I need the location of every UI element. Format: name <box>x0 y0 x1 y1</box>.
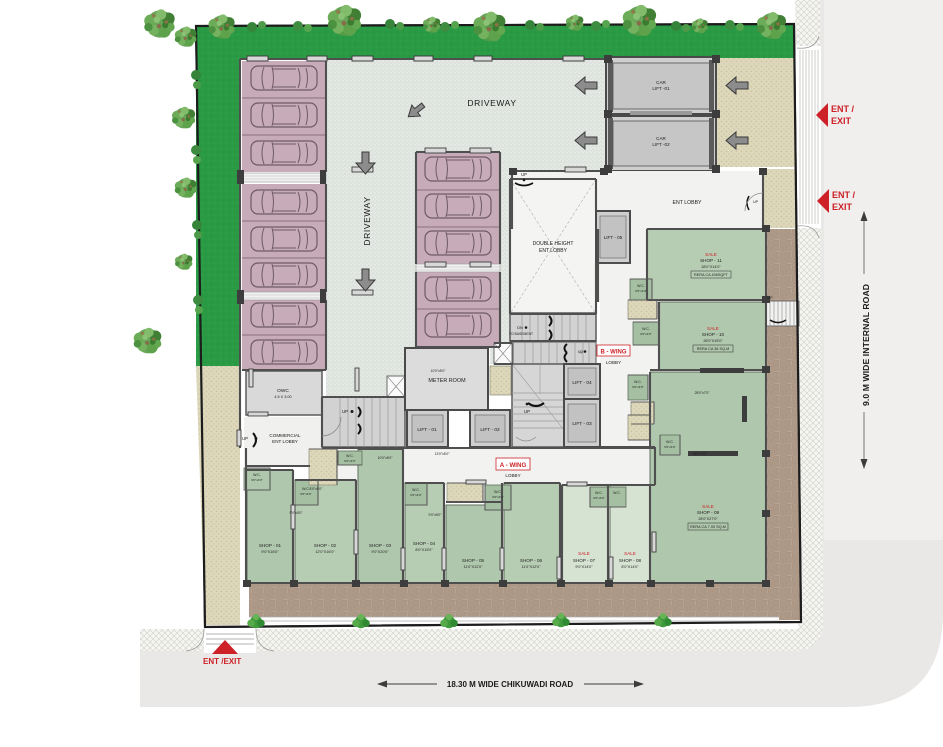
svg-text:9.0 M WIDE INTERNAL ROAD: 9.0 M WIDE INTERNAL ROAD <box>861 284 871 406</box>
svg-text:W.C.: W.C. <box>642 327 650 331</box>
svg-text:12'0"X16'0": 12'0"X16'0" <box>315 550 335 554</box>
svg-text:11'0"X12'0": 11'0"X12'0" <box>521 565 541 569</box>
svg-text:W.C.: W.C. <box>613 491 621 495</box>
svg-text:W.C.: W.C. <box>253 473 261 477</box>
svg-text:UP: UP <box>242 436 248 441</box>
svg-text:28'0"x5'0": 28'0"x5'0" <box>693 452 709 456</box>
svg-text:LOBBY: LOBBY <box>505 473 520 478</box>
svg-text:LIFT - 04: LIFT - 04 <box>572 380 592 386</box>
svg-text:SHOP - 10: SHOP - 10 <box>702 332 725 337</box>
svg-text:up: up <box>578 349 583 354</box>
svg-text:SHOP - 02: SHOP - 02 <box>314 543 337 548</box>
svg-text:6'0"x4'0": 6'0"x4'0" <box>632 385 643 389</box>
svg-text:6'0"x4'0": 6'0"x4'0" <box>251 478 262 482</box>
svg-text:6'0"x4'0": 6'0"x4'0" <box>640 332 651 336</box>
svg-text:SHOP - 06: SHOP - 06 <box>520 558 543 563</box>
svg-text:9'0"x5'0": 9'0"x5'0" <box>429 513 443 517</box>
svg-text:LIFT -01: LIFT -01 <box>652 86 670 91</box>
svg-text:UP: UP <box>767 296 773 300</box>
svg-text:28'0"x7'0": 28'0"x7'0" <box>695 391 711 395</box>
svg-text:UP: UP <box>521 172 527 177</box>
svg-text:11'0"X12'0": 11'0"X12'0" <box>463 565 483 569</box>
svg-text:28'0"X27'0": 28'0"X27'0" <box>698 517 718 521</box>
svg-text:10'0"x5'0": 10'0"x5'0" <box>431 369 447 373</box>
svg-text:LIFT - 05: LIFT - 05 <box>604 235 623 240</box>
svg-text:RERA CA 406SQFT: RERA CA 406SQFT <box>694 273 729 277</box>
svg-text:28'0"X14'0": 28'0"X14'0" <box>701 265 721 269</box>
svg-text:DRIVEWAY: DRIVEWAY <box>362 196 372 245</box>
svg-text:13'0"x5'0": 13'0"x5'0" <box>435 452 451 456</box>
svg-text:SALE: SALE <box>702 504 714 509</box>
svg-text:CAR: CAR <box>656 136 666 141</box>
svg-text:6'0"x4'0": 6'0"x4'0" <box>300 492 311 496</box>
svg-text:A - WING: A - WING <box>500 462 527 469</box>
svg-text:4.5 X 3.00: 4.5 X 3.00 <box>274 395 291 399</box>
svg-text:ENT /: ENT / <box>832 190 856 200</box>
svg-text:DRIVEWAY: DRIVEWAY <box>467 98 516 108</box>
svg-text:6'0"x4'0": 6'0"x4'0" <box>344 459 355 463</box>
svg-text:RERA CA 7.00 SQ.M: RERA CA 7.00 SQ.M <box>690 525 726 529</box>
svg-text:LIFT - 02: LIFT - 02 <box>480 427 500 433</box>
svg-text:9'0"X14'0": 9'0"X14'0" <box>575 565 593 569</box>
svg-text:SHOP - 05: SHOP - 05 <box>462 558 485 563</box>
svg-text:LIFT - 01: LIFT - 01 <box>417 427 437 433</box>
svg-text:8'0"X14'0": 8'0"X14'0" <box>621 565 639 569</box>
svg-text:8'0"X15'0": 8'0"X15'0" <box>415 548 433 552</box>
svg-text:W.C.: W.C. <box>494 490 502 494</box>
svg-text:RERA CA 36 SQ.M: RERA CA 36 SQ.M <box>697 347 730 351</box>
svg-text:METER ROOM: METER ROOM <box>428 378 466 384</box>
svg-text:6'0"x4'0": 6'0"x4'0" <box>593 496 604 500</box>
svg-text:OWC: OWC <box>277 388 289 394</box>
svg-text:COMMERCIAL: COMMERCIAL <box>269 433 301 438</box>
svg-text:ENT /: ENT / <box>831 104 855 114</box>
svg-text:8'0"x5'0": 8'0"x5'0" <box>310 487 324 491</box>
svg-text:6'0"x4'0": 6'0"x4'0" <box>664 445 675 449</box>
svg-text:18.30 M WIDE CHIKUWADI ROAD: 18.30 M WIDE CHIKUWADI ROAD <box>447 680 573 689</box>
svg-text:UP: UP <box>524 409 530 414</box>
svg-text:UP: UP <box>753 200 759 204</box>
svg-text:9'0"x5'0": 9'0"x5'0" <box>290 511 304 515</box>
svg-text:LIFT - 03: LIFT - 03 <box>572 421 592 427</box>
svg-text:EXIT: EXIT <box>831 116 852 126</box>
svg-text:SHOP - 01: SHOP - 01 <box>259 543 282 548</box>
svg-text:6'0"x4'0": 6'0"x4'0" <box>410 493 421 497</box>
svg-text:SALE: SALE <box>705 252 717 257</box>
svg-text:6'0"x4'0": 6'0"x4'0" <box>635 289 646 293</box>
svg-text:9'0"X20'0": 9'0"X20'0" <box>371 550 389 554</box>
svg-text:W.C.: W.C. <box>412 488 420 492</box>
svg-text:CAR: CAR <box>656 80 666 85</box>
svg-text:SHOP - 08: SHOP - 08 <box>619 558 642 563</box>
svg-text:SHOP - 04: SHOP - 04 <box>413 541 436 546</box>
svg-text:9'0"X16'0": 9'0"X16'0" <box>261 550 279 554</box>
svg-text:EXIT: EXIT <box>832 202 853 212</box>
svg-text:SALE: SALE <box>624 551 636 556</box>
svg-text:W.C.: W.C. <box>346 454 354 458</box>
svg-text:W.C.: W.C. <box>595 491 603 495</box>
svg-text:6'0"x4'0": 6'0"x4'0" <box>492 495 503 499</box>
svg-text:ENT LOBBY: ENT LOBBY <box>272 439 298 444</box>
svg-text:ENT LOBBY: ENT LOBBY <box>539 248 568 254</box>
svg-text:SALE: SALE <box>707 326 719 331</box>
svg-text:SHOP - 11: SHOP - 11 <box>700 258 722 263</box>
svg-text:ENT LOBBY: ENT LOBBY <box>672 200 702 206</box>
svg-text:SHOP - 09: SHOP - 09 <box>697 510 720 515</box>
svg-text:10'0"x5'0": 10'0"x5'0" <box>378 456 394 460</box>
svg-text:UP: UP <box>342 409 348 414</box>
svg-text:DN: DN <box>517 325 523 330</box>
svg-text:W.C.: W.C. <box>634 380 642 384</box>
svg-text:DOUBLE HEIGHT: DOUBLE HEIGHT <box>533 241 574 247</box>
svg-text:W.C.: W.C. <box>637 284 645 288</box>
svg-text:TO BASEMENT: TO BASEMENT <box>509 332 533 336</box>
svg-text:SHOP - 07: SHOP - 07 <box>573 558 596 563</box>
svg-text:SALE: SALE <box>578 551 590 556</box>
svg-text:LOBBY: LOBBY <box>606 360 621 365</box>
svg-text:LIFT -02: LIFT -02 <box>652 142 670 147</box>
svg-text:B - WING: B - WING <box>601 350 627 356</box>
svg-text:SHOP - 03: SHOP - 03 <box>369 543 392 548</box>
svg-text:26'0"X15'0": 26'0"X15'0" <box>703 339 723 343</box>
svg-text:ENT /EXIT: ENT /EXIT <box>203 657 241 666</box>
svg-text:W.C.: W.C. <box>666 440 674 444</box>
